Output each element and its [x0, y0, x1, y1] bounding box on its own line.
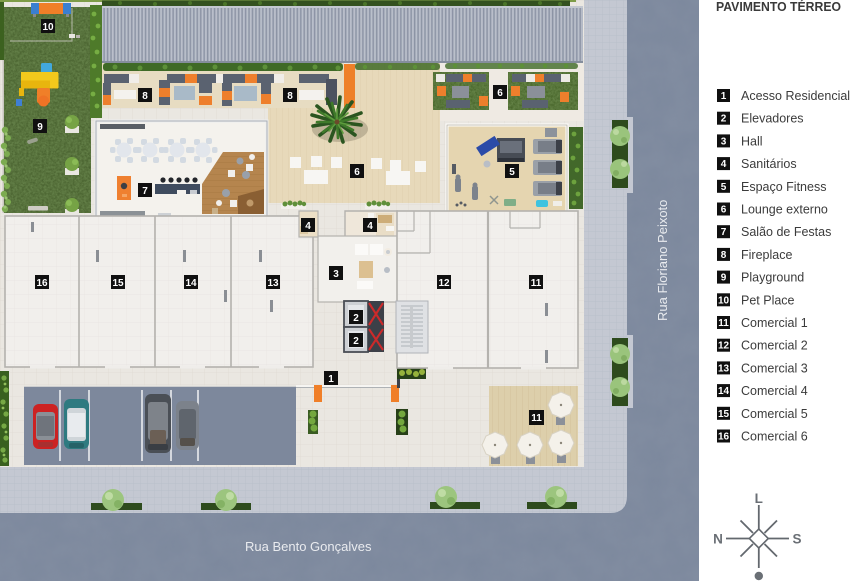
svg-text:3: 3 [721, 136, 727, 147]
svg-text:6: 6 [354, 167, 360, 178]
svg-text:14: 14 [185, 278, 197, 289]
svg-text:8: 8 [721, 250, 727, 261]
svg-text:10: 10 [42, 22, 54, 33]
svg-text:Rua Bento Gonçalves: Rua Bento Gonçalves [245, 539, 372, 554]
svg-text:16: 16 [36, 278, 48, 289]
svg-text:14: 14 [718, 386, 730, 397]
svg-text:Lounge externo: Lounge externo [741, 203, 828, 217]
svg-text:L: L [755, 491, 763, 506]
svg-text:Fireplace: Fireplace [741, 248, 792, 262]
svg-text:Comercial 4: Comercial 4 [741, 384, 808, 398]
svg-text:9: 9 [37, 122, 43, 133]
svg-text:4: 4 [305, 221, 311, 232]
svg-text:Comercial 5: Comercial 5 [741, 407, 808, 421]
svg-text:15: 15 [718, 409, 730, 420]
svg-text:11: 11 [531, 278, 542, 289]
svg-text:11: 11 [718, 318, 729, 329]
svg-text:8: 8 [287, 91, 293, 102]
svg-text:7: 7 [142, 186, 148, 197]
svg-text:2: 2 [353, 336, 359, 347]
svg-text:16: 16 [718, 432, 730, 443]
svg-text:Pet Place: Pet Place [741, 293, 795, 307]
svg-text:4: 4 [367, 221, 373, 232]
svg-text:Comercial 3: Comercial 3 [741, 361, 808, 375]
svg-text:8: 8 [142, 91, 148, 102]
svg-text:Rua Floriano Peixoto: Rua Floriano Peixoto [655, 200, 670, 321]
svg-text:Elevadores: Elevadores [741, 112, 804, 126]
svg-text:10: 10 [718, 295, 730, 306]
svg-text:12: 12 [438, 278, 450, 289]
svg-text:7: 7 [721, 227, 727, 238]
svg-text:Comercial 1: Comercial 1 [741, 316, 808, 330]
svg-text:12: 12 [718, 341, 730, 352]
svg-text:15: 15 [112, 278, 124, 289]
svg-text:Comercial 2: Comercial 2 [741, 339, 808, 353]
svg-text:13: 13 [718, 363, 730, 374]
svg-text:5: 5 [721, 182, 727, 193]
svg-text:PAVIMENTO TÉRREO: PAVIMENTO TÉRREO [716, 0, 841, 14]
svg-text:2: 2 [353, 313, 359, 324]
svg-text:Comercial 6: Comercial 6 [741, 430, 808, 444]
svg-text:6: 6 [721, 205, 727, 216]
svg-text:11: 11 [531, 413, 542, 424]
svg-text:5: 5 [509, 167, 515, 178]
svg-text:3: 3 [333, 269, 339, 280]
svg-text:1: 1 [328, 374, 334, 385]
svg-text:4: 4 [721, 159, 727, 170]
svg-text:Salão de Festas: Salão de Festas [741, 225, 831, 239]
svg-text:13: 13 [267, 278, 279, 289]
svg-text:S: S [792, 532, 801, 547]
svg-text:N: N [713, 532, 723, 547]
svg-text:9: 9 [721, 273, 727, 284]
svg-text:Sanitários: Sanitários [741, 157, 797, 171]
svg-text:Acesso Residencial: Acesso Residencial [741, 89, 850, 103]
svg-text:2: 2 [721, 114, 727, 125]
svg-text:Playground: Playground [741, 271, 804, 285]
svg-text:Espaço Fitness: Espaço Fitness [741, 180, 826, 194]
svg-text:1: 1 [721, 91, 727, 102]
svg-text:Hall: Hall [741, 134, 763, 148]
svg-text:6: 6 [497, 88, 503, 99]
